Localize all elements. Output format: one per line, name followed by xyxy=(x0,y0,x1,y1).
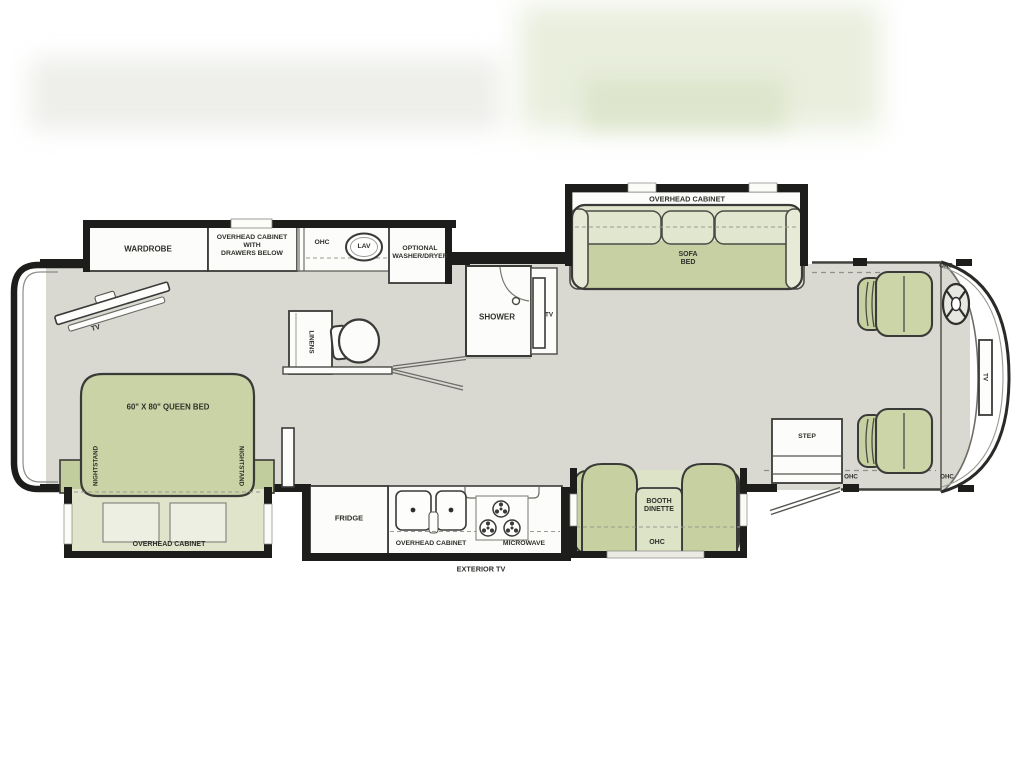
queen-bed-label: 60" X 80" QUEEN BED xyxy=(127,402,210,411)
exterior-tv-label: EXTERIOR TV xyxy=(457,566,506,575)
toilet-icon xyxy=(330,320,379,363)
cab-tv-label: TV xyxy=(981,373,988,381)
linens-label: LINENS xyxy=(307,330,314,353)
bath-ohc-label: OHC xyxy=(314,239,329,247)
steering-wheel-icon xyxy=(943,284,969,324)
booth-bench-right xyxy=(682,464,739,553)
bath-partition-wall xyxy=(283,367,392,374)
sofa-bed-label: SOFA BED xyxy=(678,251,697,268)
driver-seat xyxy=(858,272,932,336)
booth-ohc-label: OHC xyxy=(649,539,665,547)
hall-wall-stub xyxy=(282,428,294,487)
nightstand-left-label: NIGHTSTAND xyxy=(92,446,99,486)
entry-door-swing xyxy=(770,488,840,515)
bed-ohc-label: OVERHEAD CABINET xyxy=(133,541,206,549)
queen-bed xyxy=(81,374,254,496)
ohc-drawers-label: OVERHEAD CABINET WITH DRAWERS BELOW xyxy=(217,234,288,258)
microwave-label: MICROWAVE xyxy=(503,540,545,548)
lav-label: LAV xyxy=(357,243,370,251)
step-label: STEP xyxy=(798,433,816,441)
fridge-label: FRIDGE xyxy=(335,515,363,524)
booth-bench-left xyxy=(575,464,637,553)
cooktop-burners-icon xyxy=(476,496,528,540)
shower-box xyxy=(466,266,531,356)
nightstand-right-label: NIGHTSTAND xyxy=(237,446,244,486)
wardrobe-label: WARDROBE xyxy=(124,244,172,253)
entry-step xyxy=(772,419,842,483)
floorplan-drawing xyxy=(0,0,1024,768)
sink-icon xyxy=(396,491,466,533)
cab-ohc-top-label: OHC xyxy=(939,262,953,269)
sofa-ohc-label: OVERHEAD CABINET xyxy=(649,196,725,205)
kitchen-ohc-label: OVERHEAD CABINET xyxy=(396,540,467,548)
passenger-seat xyxy=(858,409,932,473)
shower-label: SHOWER xyxy=(479,312,515,321)
shower-tv-label: TV xyxy=(545,311,553,318)
booth-dinette-label: BOOTH DINETTE xyxy=(644,498,674,515)
floorplan-page: WARDROBE OVERHEAD CABINET WITH DRAWERS B… xyxy=(0,0,1024,768)
washer-dryer-label: OPTIONAL WASHER/DRYER xyxy=(392,245,447,261)
entry-ohc-right-label: OHC xyxy=(940,473,954,480)
entry-ohc-left-label: OHC xyxy=(844,473,858,480)
